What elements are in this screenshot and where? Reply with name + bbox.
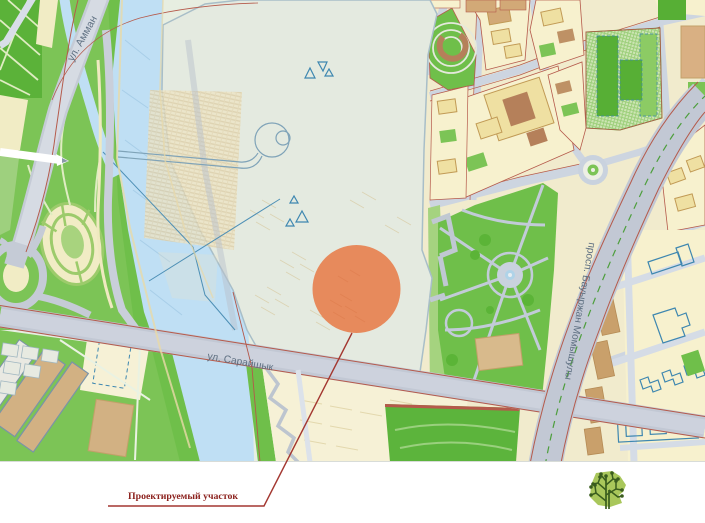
svg-text:Проектируемый участок: Проектируемый участок: [128, 491, 238, 502]
